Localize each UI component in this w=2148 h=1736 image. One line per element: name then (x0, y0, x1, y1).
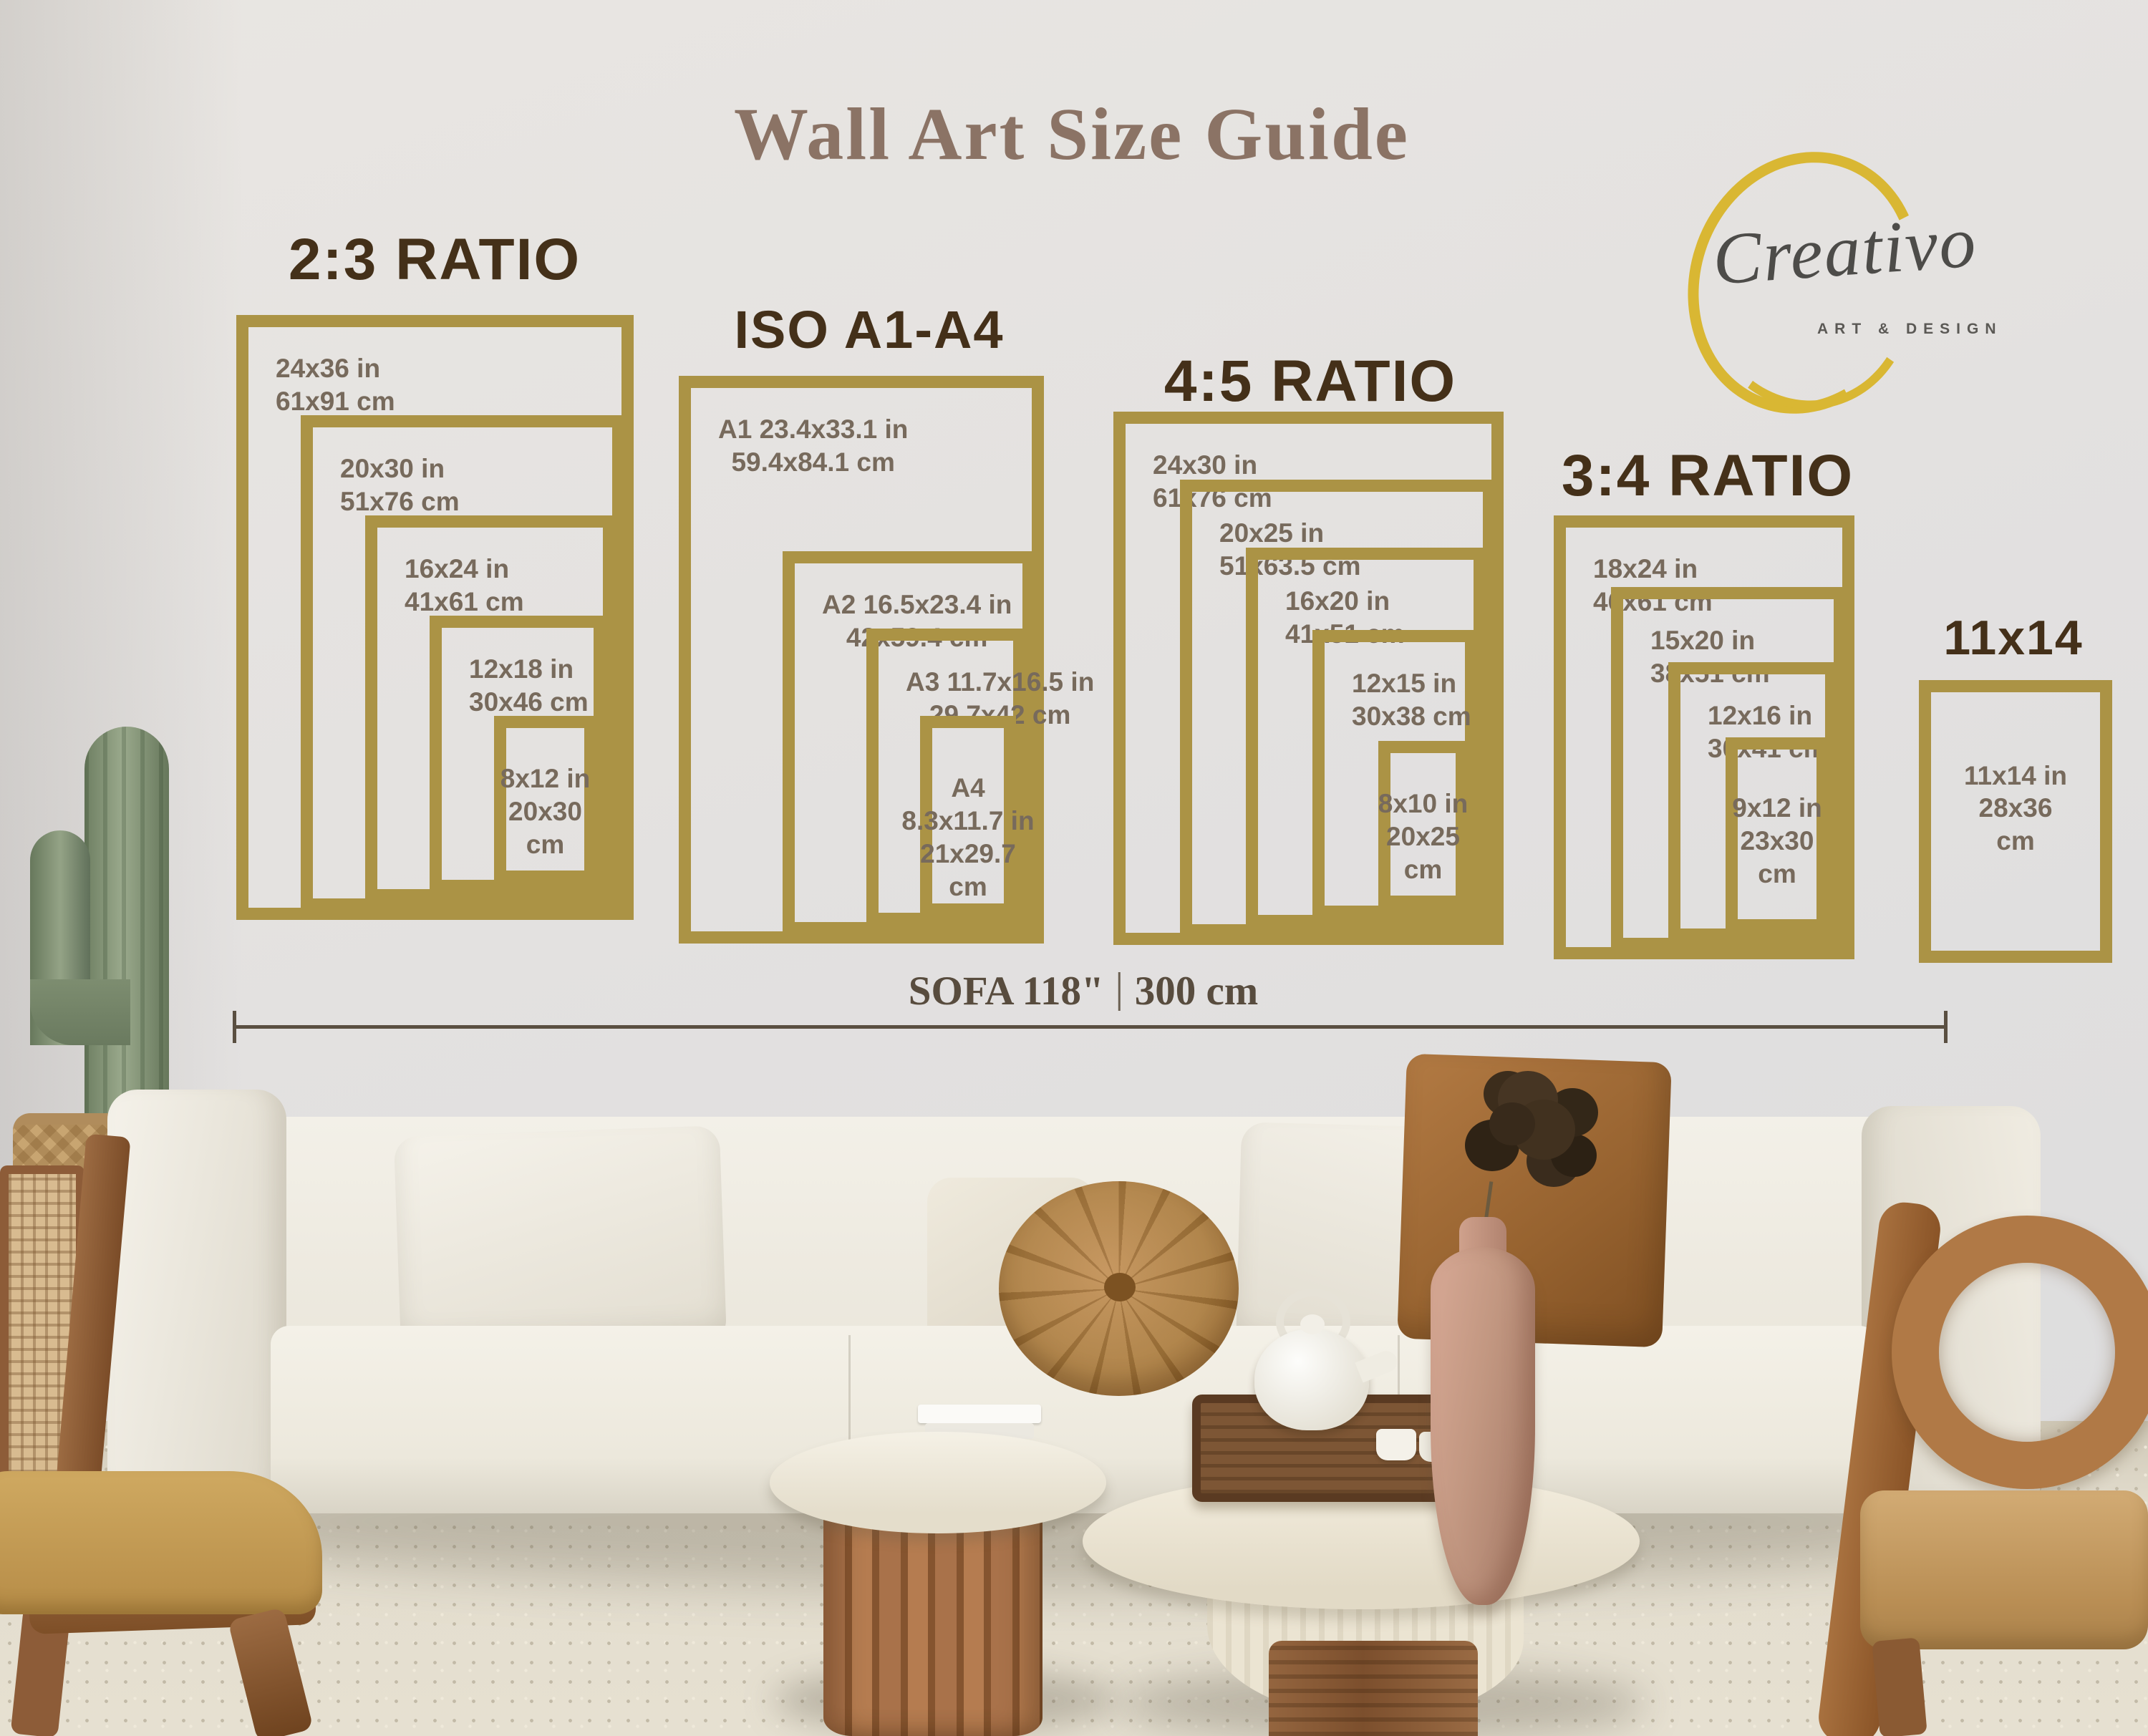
group-heading-iso-a1-a4: ISO A1-A4 (734, 299, 1004, 360)
frame-label-line: cm (1964, 825, 2067, 858)
frame-label-12x15: 12x15 in30x38 cm (1352, 667, 1471, 733)
frame-label-8x12: 8x12 in20x30cm (500, 762, 590, 861)
frame-label-line: 8x12 in (500, 762, 590, 795)
armchair-leg (1872, 1637, 1927, 1736)
wall-art-size-guide: Wall Art Size Guide Creativo ART & DESIG… (0, 0, 2148, 1736)
teacup (1376, 1429, 1416, 1460)
coffee-table-wood-block (1269, 1641, 1478, 1736)
frame-label-8x10: 8x10 in20x25cm (1378, 787, 1468, 886)
frame-label-line: 21x29.7 (901, 838, 1034, 871)
teapot-lid-knob (1300, 1314, 1325, 1334)
cactus-elbow (30, 979, 130, 1045)
sofa-width-cm: 300 cm (1135, 968, 1259, 1014)
measure-divider (1118, 972, 1121, 1011)
frame-label-line: 61x91 cm (276, 385, 395, 418)
frame-label-line: 18x24 in (1593, 553, 1713, 586)
sofa-measure-label: SOFA 118" 300 cm (909, 968, 1258, 1014)
frame-label-line: cm (500, 828, 590, 861)
frame-label-line: 15x20 in (1650, 624, 1770, 657)
pillow-button (1104, 1273, 1136, 1301)
frame-label-line: 12x16 in (1708, 699, 1827, 732)
frame-label-line: 20x30 (500, 795, 590, 828)
frame-label-line: 11x14 in (1964, 760, 2067, 792)
frame-label-line: 59.4x84.1 cm (718, 446, 908, 479)
side-table-top (770, 1432, 1106, 1533)
frame-label-line: A2 16.5x23.4 in (822, 588, 1012, 621)
frame-label-24x36: 24x36 in61x91 cm (276, 352, 395, 418)
group-heading-ratio-2-3: 2:3 RATIO (289, 226, 581, 294)
frame-label-line: 16x20 in (1285, 585, 1405, 618)
frame-label-a1: A1 23.4x33.1 in59.4x84.1 cm (718, 413, 908, 479)
frame-label-line: 30x38 cm (1352, 700, 1471, 733)
frame-label-line: 23x30 (1732, 825, 1822, 858)
books-on-table (918, 1405, 1041, 1423)
frame-label-line: 16x24 in (405, 553, 524, 586)
frame-label-line: 28x36 (1964, 792, 2067, 825)
side-chair-cushion (0, 1471, 322, 1614)
logo-tagline: ART & DESIGN (1817, 321, 2003, 338)
sofa-measure-line (233, 1025, 1948, 1029)
frame-label-line: 20x25 (1378, 820, 1468, 853)
frame-label-line: 30x46 cm (469, 686, 589, 719)
frame-label-line: 8x10 in (1378, 787, 1468, 820)
frame-label-a4: A48.3x11.7 in21x29.7cm (901, 772, 1034, 903)
measure-cap-left (233, 1011, 236, 1043)
frame-label-16x24: 16x24 in41x61 cm (405, 553, 524, 619)
pillow-white-left (394, 1125, 727, 1355)
group-heading-ratio-3-4: 3:4 RATIO (1562, 442, 1854, 510)
frame-label-line: 41x61 cm (405, 586, 524, 619)
frame-label-line: 8.3x11.7 in (901, 805, 1034, 838)
frame-label-line: A4 (901, 772, 1034, 805)
ceramic-vase (1431, 1247, 1535, 1605)
logo-brand: Creativo (1710, 200, 1979, 301)
frame-label-9x12: 9x12 in23x30cm (1732, 792, 1822, 891)
dried-flowers (1489, 1102, 1535, 1145)
armchair-round-back (1892, 1216, 2148, 1489)
frame-label-line: 9x12 in (1732, 792, 1822, 825)
frame-label-line: 24x36 in (276, 352, 395, 385)
sofa-arm-left (107, 1090, 286, 1512)
group-heading-size-11x14: 11x14 (1943, 610, 2083, 666)
frame-label-line: A3 11.7x16.5 in (906, 666, 1094, 699)
page-title: Wall Art Size Guide (734, 92, 1410, 177)
frame-label-12x18: 12x18 in30x46 cm (469, 653, 589, 719)
frame-label-line: cm (901, 871, 1034, 903)
frame-label-line: 51x76 cm (340, 485, 460, 518)
frame-label-line: A1 23.4x33.1 in (718, 413, 908, 446)
frame-label-20x30: 20x30 in51x76 cm (340, 452, 460, 518)
armchair-seat-cushion (1860, 1490, 2148, 1649)
frame-label-line: 20x30 in (340, 452, 460, 485)
frame-label-line: cm (1378, 853, 1468, 886)
sofa-width-inches: SOFA 118" (909, 968, 1104, 1014)
group-heading-ratio-4-5: 4:5 RATIO (1164, 348, 1456, 415)
frame-label-line: cm (1732, 858, 1822, 891)
frame-label-line: 12x15 in (1352, 667, 1471, 700)
teapot (1254, 1329, 1369, 1430)
measure-cap-right (1944, 1011, 1948, 1043)
frame-label-line: 12x18 in (469, 653, 589, 686)
frame-label-11x14: 11x14 in28x36cm (1964, 760, 2067, 858)
frame-label-line: 24x30 in (1153, 449, 1272, 482)
frame-label-line: 20x25 in (1219, 517, 1361, 550)
